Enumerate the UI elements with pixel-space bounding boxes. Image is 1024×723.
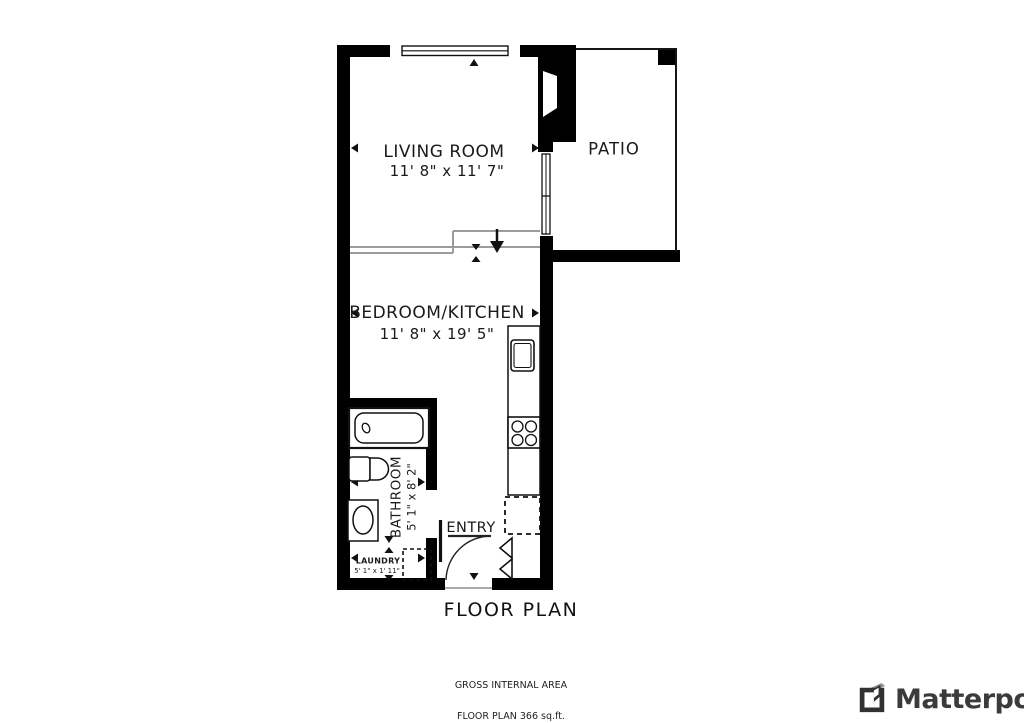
- wall-right-bedroom: [540, 250, 553, 590]
- kitchen-counter: [508, 326, 540, 495]
- bedroom-kitchen-label: BEDROOM/KITCHEN: [349, 303, 525, 323]
- floor-plan-area-line: FLOOR PLAN 366 sq.ft.: [382, 712, 640, 722]
- wall-patio-bottom: [540, 250, 680, 262]
- top-window-icon: [390, 45, 520, 57]
- floor-plan-title: FLOOR PLAN: [444, 599, 579, 621]
- bathroom-label-group: BATHROOM 5' 1" x 8' 2": [390, 456, 419, 538]
- wall-bathroom-top: [337, 398, 437, 409]
- laundry-label: LAUNDRY: [356, 557, 401, 566]
- step-down-arrow-icon: [472, 229, 505, 262]
- living-room-dimension-arrows-icon: [351, 59, 539, 153]
- laundry-dimensions: 5' 1" x 1' 11": [354, 567, 400, 575]
- wall-bathroom-right-upper: [426, 398, 437, 490]
- living-room-dimensions: 11' 8" x 11' 7": [390, 162, 505, 180]
- matterport-logo-icon: [856, 682, 888, 716]
- closet-bifold-door-icon: [500, 538, 512, 579]
- bedroom-kitchen-dimensions: 11' 8" x 19' 5": [380, 325, 495, 343]
- kitchen-sink-icon: [511, 340, 534, 371]
- bathroom-dimensions: 5' 1" x 8' 2": [405, 456, 418, 538]
- wall-bathroom-right-lower: [426, 538, 437, 590]
- floor-plan-page: LIVING ROOM 11' 8" x 11' 7" PATIO BEDROO…: [0, 0, 1024, 723]
- area-summary: GROSS INTERNAL AREA FLOOR PLAN 366 sq.ft…: [382, 661, 640, 723]
- wall-living-patio-block: [538, 45, 576, 142]
- bathroom-label: BATHROOM: [390, 456, 406, 538]
- wall-top-left: [337, 45, 390, 57]
- fridge-dashed-icon: [505, 497, 540, 534]
- patio-window-icon: [540, 152, 552, 236]
- wall-left: [337, 45, 350, 590]
- matterport-logo: Matterport: [856, 682, 1024, 716]
- stove-icon: [508, 417, 540, 448]
- gross-internal-area-line: GROSS INTERNAL AREA: [382, 681, 640, 691]
- toilet-icon: [349, 457, 389, 481]
- wall-patio-corner-block: [658, 48, 677, 65]
- bathtub-icon: [349, 408, 429, 448]
- entry-door-arc-icon: [446, 536, 491, 580]
- entry-threshold-arrow-icon: [470, 573, 479, 580]
- wall-living-patio-stub-upper: [538, 140, 553, 152]
- matterport-logo-text: Matterport: [895, 684, 1024, 715]
- vanity-sink-icon: [348, 500, 378, 541]
- step-lines: [350, 231, 540, 588]
- patio-label: PATIO: [588, 140, 640, 159]
- entry-label: ENTRY: [446, 520, 495, 536]
- wall-bottom-right: [492, 578, 553, 590]
- living-room-label: LIVING ROOM: [383, 142, 504, 162]
